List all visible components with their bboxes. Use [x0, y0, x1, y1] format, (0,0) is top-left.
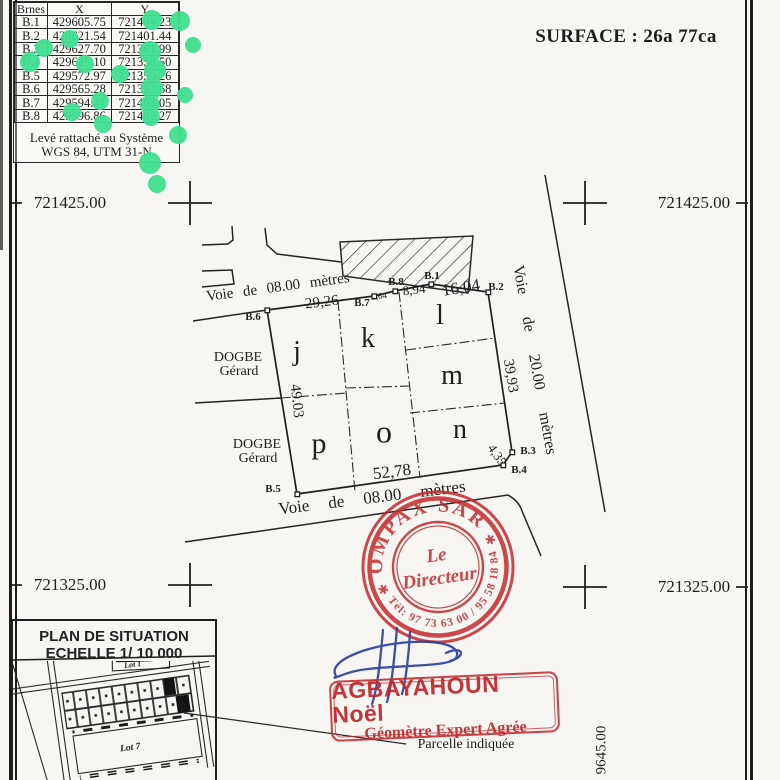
borne-marker-b5 [295, 492, 300, 497]
point-label-b7: B.7 [354, 297, 370, 309]
grid-cross-top-right [563, 181, 607, 225]
stamp-phone-arc-text: Tél: 97 73 63 00 / 95 58 18 84 [384, 547, 521, 651]
page-border-right-outer [750, 0, 753, 780]
borne-x: 429627.70 [48, 42, 112, 55]
road-label-bottom: Voie de 08.00 mètres [277, 477, 466, 520]
round-stamp: COMPAX SARL Tél: 97 73 63 00 / 95 58 18 … [338, 467, 537, 666]
borne-id: B.6 [15, 83, 48, 96]
borne-x: 429572.97 [48, 69, 112, 82]
point-label-b5: B.5 [265, 483, 281, 495]
header-bornes: Brnes [15, 3, 48, 16]
borne-y: 721393.68 [111, 83, 178, 96]
lot-label-m: m [441, 360, 463, 392]
borne-id: B.8 [15, 109, 48, 122]
point-label-b6: B.6 [245, 311, 261, 323]
borne-marker-b3 [510, 450, 515, 455]
borne-id: B.5 [15, 69, 48, 82]
parcel-boundary [267, 284, 512, 494]
grid-label-top-left: 721425.00 [34, 193, 106, 213]
survey-plan-page: Brnes X Y B.1429605.75721404.23 B.242962… [0, 0, 780, 780]
borne-y: 721350.26 [111, 69, 178, 82]
borne-marker-b6 [265, 308, 270, 313]
lot-label-j: j [293, 336, 301, 368]
neighbor-dogbe-1-line1: DOGBE [214, 350, 262, 366]
lot-label-p: p [312, 427, 327, 461]
scan-edge-artifact [0, 0, 3, 250]
table-row: B.7429594.41721403.05 [15, 96, 179, 109]
cross-street-left [47, 661, 65, 780]
stamp-star-right-icon: ✱ [482, 531, 498, 549]
filled-parcel-2 [163, 677, 176, 695]
road-edge-extension [193, 310, 267, 321]
lot-label-l: l [436, 300, 444, 332]
cross-street-left2 [53, 660, 71, 780]
table-row: B.1429605.75721404.23 [15, 16, 179, 29]
stamp-ring-inner [378, 507, 498, 627]
datum-note-line2: WGS 84, UTM 31-N [14, 145, 179, 159]
grid-crosses [10, 181, 748, 609]
situation-scale: ECHELLE 1/ 10 000 [14, 645, 214, 662]
road-label-top: Voie de 08.00 mètres [205, 270, 350, 306]
measure-b4-b5: 52,78 [372, 460, 412, 485]
neighbor-boundary-line [195, 398, 281, 403]
measure-b7-b8: 2,64 [371, 290, 388, 302]
borne-y: 721361.99 [111, 42, 178, 55]
stamp-title-line1: Le [424, 544, 448, 568]
road-label-right: Voie de 20.00 mètres [508, 264, 559, 456]
street-line [6, 661, 209, 690]
borne-y: 721404.23 [111, 16, 178, 29]
divider-k-o [346, 386, 409, 388]
bornes-table: Brnes X Y B.1429605.75721404.23 B.242962… [14, 2, 179, 123]
table-header-row: Brnes X Y [15, 3, 179, 16]
borne-id: B.1 [15, 16, 48, 29]
parcel-block [62, 675, 194, 728]
borne-marker-b1 [429, 282, 434, 287]
point-label-b1: B.1 [424, 270, 440, 282]
divider-jk-po [338, 301, 355, 492]
divider-m-n [410, 403, 505, 413]
indicated-parcel-filled [176, 695, 191, 714]
grid-label-top-right: 721425.00 [658, 193, 730, 213]
lot-label-n: n [453, 414, 467, 446]
table-row: B.2429621.54721401.44 [15, 29, 179, 42]
divider-ko-lmn [399, 292, 420, 478]
neighbor-dogbe-2-line2: Gérard [239, 451, 278, 467]
point-label-b8: B.8 [388, 276, 404, 288]
stamp-center-text: Le Directeur [397, 540, 479, 594]
measure-b8-b1: 8,94 [402, 281, 427, 300]
stamp-ring-outer2 [347, 476, 529, 658]
stamp-org-arc-text: COMPAX SARL [345, 472, 504, 601]
situation-lot7-label: Lot 7 [119, 742, 143, 755]
street-dashes-top [72, 713, 193, 734]
grid-cross-top-left [168, 181, 212, 225]
measure-b6-b7: 29,26 [304, 293, 340, 314]
borne-x: 429565.28 [48, 83, 112, 96]
hatched-area [340, 236, 473, 293]
lot-label-k: k [361, 323, 375, 355]
point-label-b4: B.4 [511, 464, 527, 476]
road-corner-2 [265, 228, 341, 262]
road-bottom-outer-edge [185, 495, 541, 556]
measure-b1-b2: 16,04 [441, 275, 482, 301]
borne-id: B.7 [15, 96, 48, 109]
stamp-ring-inner2 [384, 513, 493, 622]
grid-cross-bottom-left [168, 563, 212, 607]
grid-border-ticks [10, 203, 748, 587]
table-row: B.5429572.97721350.26 [15, 69, 179, 82]
borne-x: 429594.41 [48, 96, 112, 109]
borne-marker-b7 [372, 294, 377, 299]
table-row: B.8429596.86721402.27 [15, 109, 179, 122]
neighbor-dogbe-1-line2: Gérard [220, 364, 259, 380]
divider-l-m [406, 338, 495, 350]
surface-label: SURFACE : 26a 77ca [535, 26, 717, 48]
borne-y: 721403.05 [111, 96, 178, 109]
street-line [7, 666, 210, 695]
header-y: Y [111, 3, 178, 16]
table-row: B.3429627.70721361.99 [15, 42, 179, 55]
road-corner-1 [202, 226, 233, 245]
lot7-block [73, 719, 202, 774]
lot-dividers [281, 292, 505, 492]
coordinates-box: Brnes X Y B.1429605.75721404.23 B.242962… [13, 1, 180, 163]
green-dot [148, 175, 166, 193]
datum-note-line1: Levé rattaché au Système [14, 131, 179, 145]
borne-x: 429605.75 [48, 16, 112, 29]
page-border-left-outer [9, 0, 12, 780]
borne-id: B.4 [15, 56, 48, 69]
borne-id: B.3 [15, 42, 48, 55]
borne-markers [265, 282, 515, 497]
borne-marker-b4 [501, 463, 506, 468]
borne-x: 429625.10 [48, 56, 112, 69]
stamp-title-line2: Directeur [400, 563, 479, 594]
borne-y: 721401.44 [111, 29, 178, 42]
grid-label-right-edge-vertical: 9645.00 [594, 726, 611, 775]
adjacent-roads [185, 175, 605, 556]
parcel-block-midline [64, 693, 191, 711]
street-dashes-bottom [80, 759, 199, 780]
green-dot [185, 37, 201, 53]
header-x: X [48, 3, 112, 16]
borne-marker-b2 [486, 290, 491, 295]
point-label-b2: B.2 [488, 281, 504, 293]
surveyor-stamp: AGBAYAHOUN Noël Géomètre Expert Agrée [329, 671, 560, 742]
measure-b2-b3: 39,93 [499, 358, 521, 394]
grid-label-bottom-right: 721325.00 [658, 577, 730, 597]
borne-id: B.2 [15, 29, 48, 42]
stamp-star-left-icon: ✱ [375, 581, 391, 599]
table-row: B.6429565.28721393.68 [15, 83, 179, 96]
road-right-outer-edge [545, 175, 605, 512]
surveyor-stamp-inner-border [333, 675, 556, 738]
situation-title: PLAN DE SITUATION [14, 628, 214, 645]
measure-b3-b4: 4,35 [484, 441, 510, 469]
divider-j-p [281, 393, 347, 398]
borne-y: 721358.50 [111, 56, 178, 69]
grid-label-bottom-left: 721325.00 [34, 575, 106, 595]
table-row: B.4429625.10721358.50 [15, 56, 179, 69]
borne-marker-b8 [393, 289, 398, 294]
borne-y: 721402.27 [111, 109, 178, 122]
lot-label-o: o [376, 414, 392, 451]
measure-b5-b6: 49.03 [286, 383, 306, 418]
road-corner-3 [202, 270, 234, 287]
stamp-ring-outer [338, 467, 537, 666]
grid-cross-bottom-right [563, 565, 607, 609]
borne-x: 429596.86 [48, 109, 112, 122]
neighbor-dogbe-2-line1: DOGBE [233, 437, 281, 453]
borne-x: 429621.54 [48, 29, 112, 42]
page-border-right-inner [745, 0, 747, 780]
point-label-b3: B.3 [520, 445, 536, 457]
diagonal-street [12, 660, 50, 780]
signature-flourish [446, 650, 461, 661]
